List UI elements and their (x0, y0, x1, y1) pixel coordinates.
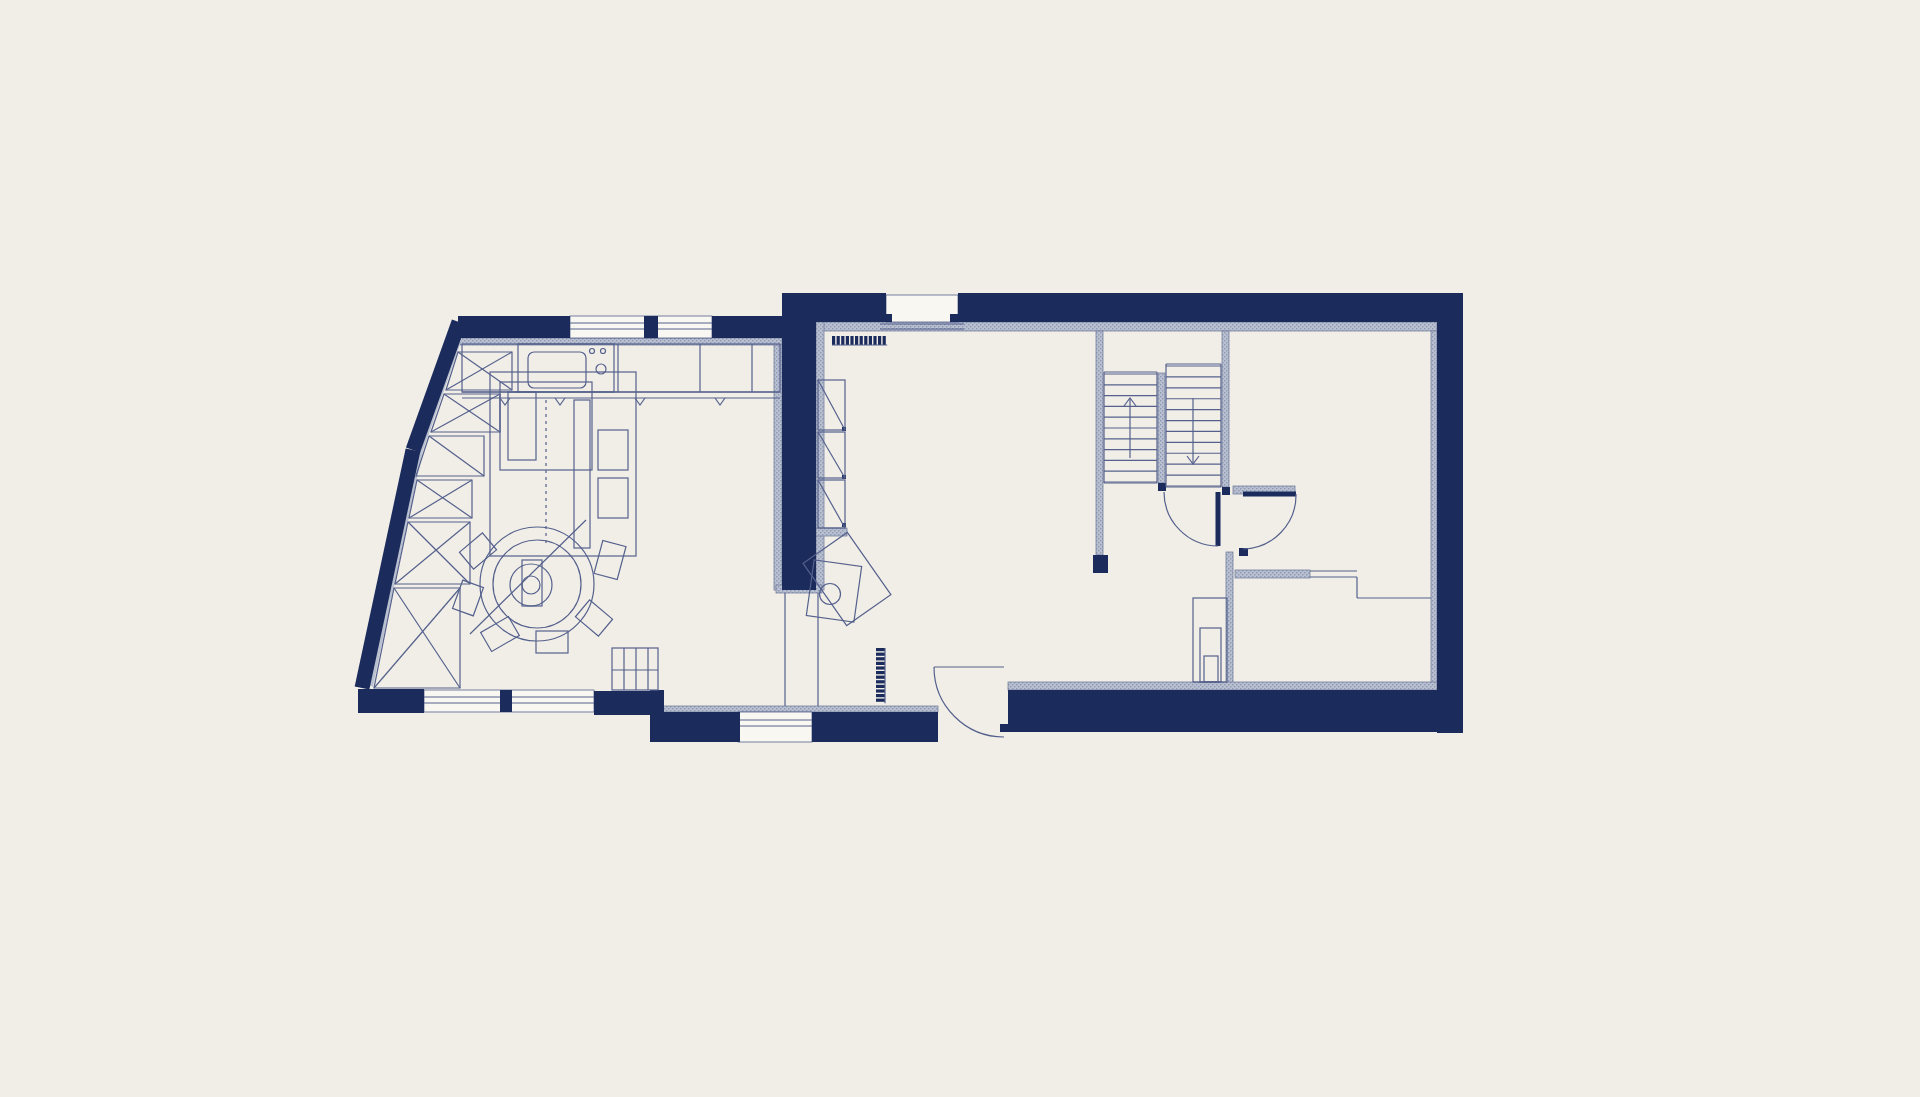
top-window-mullion (644, 316, 658, 338)
radiator-side-tooth-3 (876, 662, 885, 665)
radiator-top-tooth-4 (850, 336, 853, 345)
stair-door-jamb (1222, 487, 1230, 495)
radiator-top-tooth-5 (855, 336, 858, 345)
top-wall-right-b (958, 293, 1463, 322)
radiator-side-tooth-11 (876, 699, 885, 702)
corner-furniture-inner (1204, 656, 1218, 682)
radiator-side (876, 648, 885, 703)
sink-unit (518, 344, 614, 392)
radiator-side-tooth-6 (876, 676, 885, 679)
window-top-right (886, 295, 958, 322)
top-wall-left-a (458, 316, 570, 338)
radiator-top (832, 336, 887, 345)
lining-right-inner (1431, 331, 1437, 690)
island-box-a (598, 430, 628, 470)
radiator-top-tooth-8 (869, 336, 872, 345)
floor-plan (0, 0, 1920, 1097)
stair-wall-mid (1158, 373, 1165, 483)
radiator-side-tooth-4 (876, 666, 885, 669)
radiator-top-tooth-2 (841, 336, 844, 345)
island-inner-b (508, 392, 536, 460)
wall-cabinet-1-x1 (458, 352, 512, 390)
lining-top-right (816, 322, 1437, 331)
wall-cabinet-4-x2 (409, 480, 472, 518)
chair-2 (453, 580, 484, 616)
kitchen-counter (462, 344, 780, 392)
radiator-side-tooth-7 (876, 680, 885, 683)
walls-layer (358, 293, 1463, 742)
radiator-side-tooth-1 (876, 653, 885, 656)
stair-wall-end-block (1093, 555, 1108, 573)
exterior-door-arc (934, 667, 1004, 737)
ext-door-jamb-a (930, 712, 938, 720)
radiator-top-tooth-11 (883, 336, 886, 345)
wall-cabinet-3-swing (429, 436, 484, 476)
radiator-top-tooth-0 (832, 336, 835, 345)
wall-cabinet-3 (416, 436, 484, 476)
round-arc-inner (493, 540, 581, 628)
outer-wall-right (1437, 293, 1463, 733)
round-arc-outer (480, 527, 594, 641)
corner-furniture-outer (1193, 598, 1227, 682)
wall-cabinet-6-x1 (394, 588, 460, 688)
window-hook-b (950, 314, 958, 322)
round-seat-core (522, 576, 540, 594)
wall-linings-layer (360, 322, 1437, 712)
top-wall-left-b (712, 316, 800, 338)
bottom-wall-mid-b (812, 712, 938, 742)
window-bottom-mid (738, 712, 812, 742)
window-hook-a (884, 314, 892, 322)
radiator-side-tooth-5 (876, 671, 885, 674)
wall-cabinet-4-x1 (417, 480, 472, 518)
radiator-top-tooth-1 (837, 336, 840, 345)
cabinet-cap-right (816, 528, 847, 536)
radiator-top-tooth-3 (846, 336, 849, 345)
chair-6 (594, 540, 626, 579)
stair-wall-right (1222, 331, 1229, 487)
bottom-wall-right (1008, 690, 1463, 732)
island-outline (490, 372, 636, 556)
radiator-side-tooth-9 (876, 689, 885, 692)
hook-2 (555, 398, 565, 405)
island-box-b (598, 478, 628, 518)
lining-middle-left (774, 331, 782, 590)
stair-wall-left (1096, 331, 1103, 555)
bottom-window-mullion (500, 690, 512, 712)
chair-5 (575, 600, 612, 636)
radiator-side-tooth-8 (876, 685, 885, 688)
hook-4 (715, 398, 725, 405)
radiator-top-tooth-9 (873, 336, 876, 345)
radiator-top-tooth-10 (878, 336, 881, 345)
wall-cabinet-2-x1 (444, 394, 500, 432)
lining-bottom-right (1008, 682, 1437, 690)
ext-door-jamb-b (1000, 724, 1008, 732)
sink-basin (528, 352, 586, 388)
window-top-left (570, 316, 712, 338)
radiator-side-tooth-2 (876, 657, 885, 660)
round-seat (510, 564, 552, 606)
tap-dot-b (601, 349, 606, 354)
stair-mid-block (1158, 483, 1166, 491)
island-rail (574, 400, 590, 548)
lining-bottom-mid (660, 706, 938, 712)
details-layer (374, 336, 1431, 737)
radiator-top-tooth-6 (860, 336, 863, 345)
radiator-side-tooth-0 (876, 648, 885, 651)
tap-dot-a (590, 349, 595, 354)
stair-door-arc (1164, 492, 1218, 546)
windows-layer (424, 295, 964, 742)
room2-partition (1235, 570, 1310, 578)
bottom-wall-mid-a (652, 712, 740, 742)
room2-door-arc (1243, 494, 1296, 549)
radiator-top-tooth-7 (864, 336, 867, 345)
grid-box (612, 648, 658, 690)
page-background (0, 0, 1920, 1097)
radiator-side-tooth-10 (876, 694, 885, 697)
